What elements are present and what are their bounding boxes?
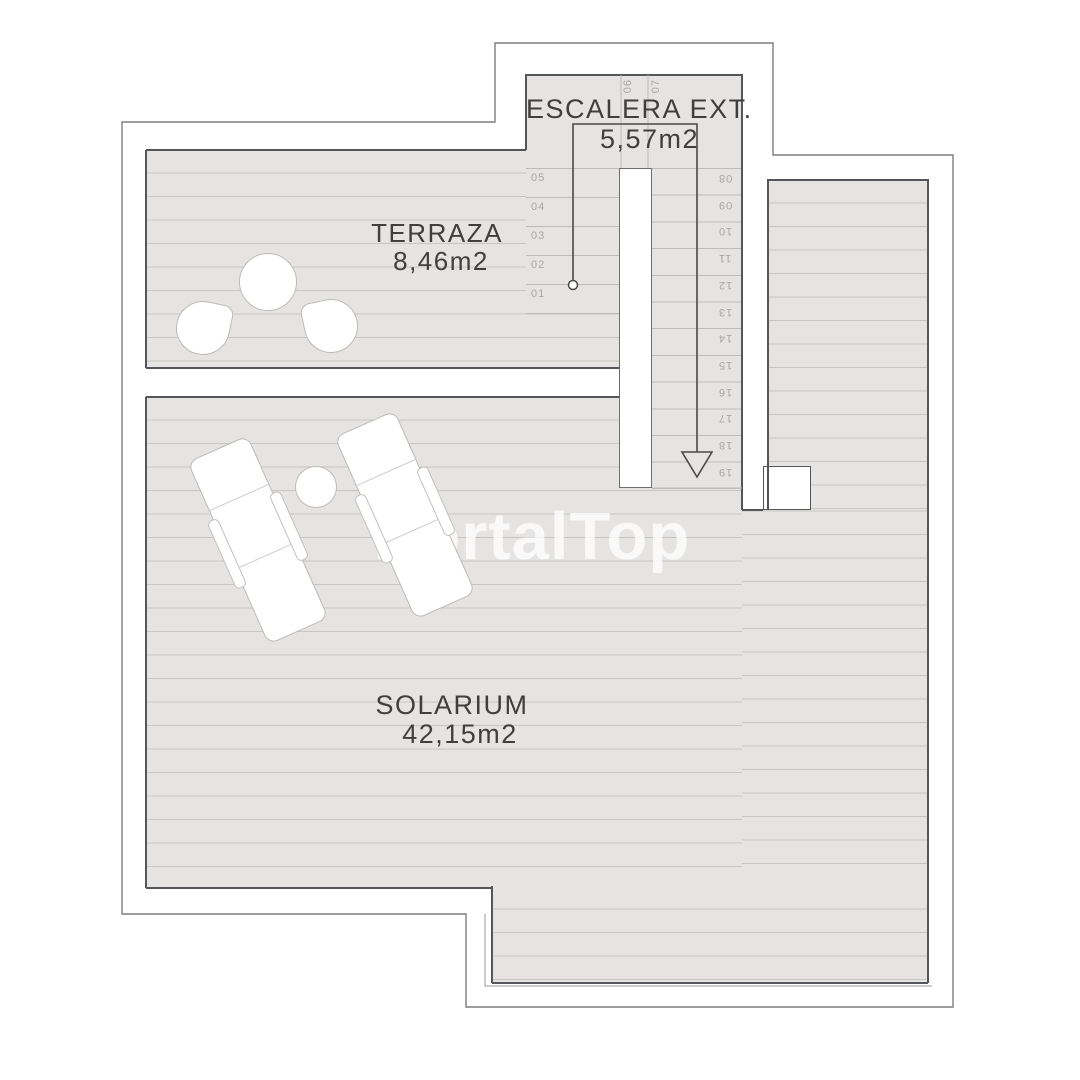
stairwell-void-wall [619,168,652,488]
right-strip-decking [768,180,928,510]
wall-corridor-right-of-stairs [742,156,768,510]
escalera-area: 5,57m2 [526,124,699,155]
lounger-segment-line [236,543,295,570]
wall-divider-terraza-solarium [124,369,625,396]
step-number: 07 [650,79,662,93]
step-number: 04 [531,201,545,213]
step-number: 08 [718,172,732,184]
solarium-decking-right [742,488,928,888]
solarium-area: 42,15m2 [360,719,560,750]
step-number: 16 [718,386,732,398]
step-number: 09 [718,199,732,211]
step-number: 14 [718,332,732,344]
step-number: 17 [718,412,732,424]
solarium-side-table [295,466,337,508]
lounger-segment-line [357,459,416,486]
terraza-label: TERRAZA [337,218,537,249]
step-number: 10 [718,225,732,237]
solarium-decking-bottom [492,886,928,983]
escalera-label: ESCALERA EXT. [526,94,742,125]
solarium-label: SOLARIUM [352,690,552,721]
step-number: 12 [718,279,732,291]
terraza-table [239,253,297,311]
terraza-area: 8,46m2 [341,246,541,277]
step-number: 11 [718,252,731,264]
step-number: 13 [718,306,732,318]
lounger-segment-line [383,518,442,545]
step-number: 18 [718,439,732,451]
lounger-segment-line [210,484,269,511]
step-number: 01 [531,288,545,300]
step-number: 05 [531,172,545,184]
pillar [763,466,811,510]
step-number: 15 [718,359,732,371]
step-number: 19 [718,466,732,478]
step-number: 06 [622,79,634,93]
floor-plan: PortalTop 0504030201 0607 08091011121314… [0,0,1080,1080]
